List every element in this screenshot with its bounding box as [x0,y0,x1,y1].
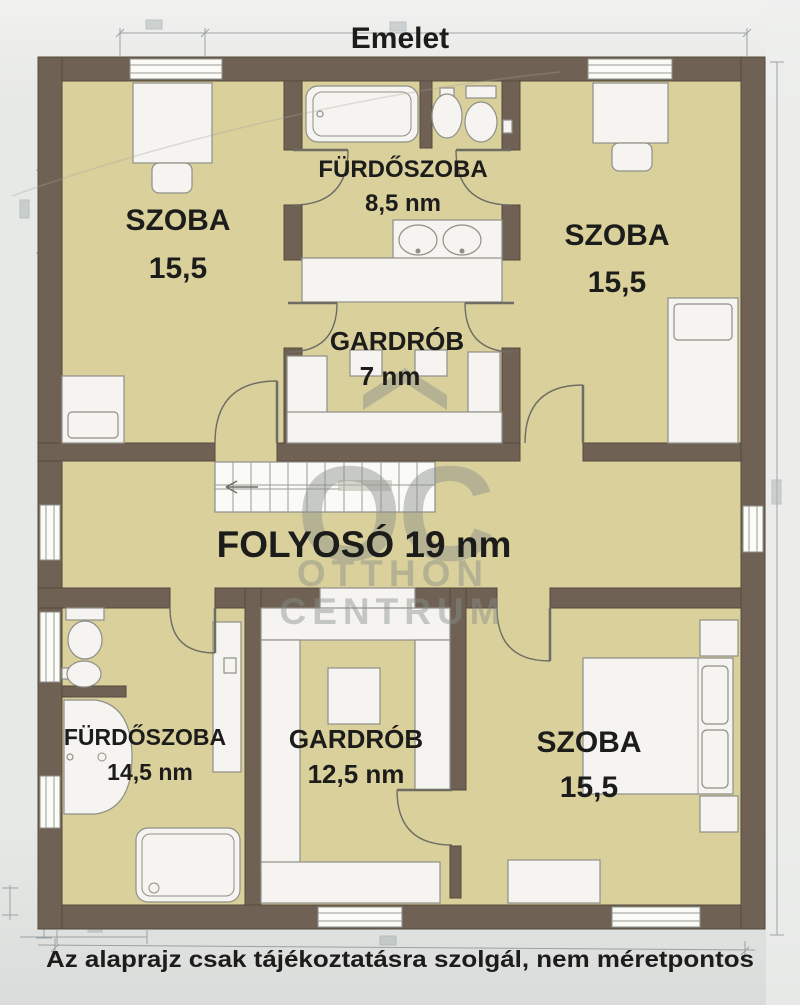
faucet [416,249,421,254]
dimension-tick-label [380,936,396,945]
toilet-tank [66,608,104,620]
room-area-szoba-bottom-right: 15,5 [560,771,618,804]
window [588,59,672,79]
room-area-szoba-top-left: 15,5 [149,252,207,285]
desk [593,83,668,143]
wall-inner [502,205,520,260]
dimension-tick-label [772,480,781,504]
wall-stub-bathroom [62,686,126,697]
wall-inner [284,205,302,260]
wall-inner [502,81,520,150]
bidet [67,661,101,687]
window [40,776,60,828]
wall-inner [245,588,261,905]
pillow [702,730,728,788]
cabinet-handle [224,658,236,673]
room-label-furdoszoba-bottom: FÜRDŐSZOBA [64,723,226,750]
wardrobe [261,862,440,903]
room-area-gardrob-bottom: 12,5 nm [308,759,405,789]
desk [133,83,212,163]
toilet-tank [466,86,496,98]
faucet [460,249,465,254]
wall-outer-right [741,57,765,929]
dimension-tick-label [146,20,162,29]
room-area-gardrob-top: 7 nm [360,361,421,391]
toilet-paper-holder [503,120,512,133]
room-label-szoba-top-right: SZOBA [565,219,670,252]
door-leaf [450,846,461,898]
floor-plan-drawing: OC OTTHON CENTRUM SZOBA 15,5 FÜRDŐSZOBA … [0,0,800,1005]
window [40,505,60,560]
faucet [67,754,73,760]
room-area-furdoszoba-bottom: 14,5 nm [107,759,193,785]
wall-corridor-top [583,443,741,461]
bidet [432,94,462,138]
nightstand [700,620,738,656]
room-area-furdoszoba-top: 8,5 nm [365,190,441,217]
page-title: Emelet [351,22,449,55]
wall-corridor-bottom [38,588,170,608]
chair [152,163,192,193]
room-label-szoba-top-left: SZOBA [126,204,231,237]
floor-plan-page: OC OTTHON CENTRUM SZOBA 15,5 FÜRDŐSZOBA … [0,0,800,1005]
room-label-furdoszoba-top: FÜRDŐSZOBA [318,155,487,183]
room-label-szoba-bottom-right: SZOBA [537,726,642,759]
toilet [465,102,497,142]
room-label-folyoso: FOLYOSÓ 19 nm [217,523,512,565]
wardrobe [287,356,327,414]
window [130,59,222,79]
window [743,506,763,552]
room-area-szoba-top-right: 15,5 [588,266,646,299]
window [612,907,700,927]
disclaimer-caption: Az alaprajz csak tájékoztatásra szolgál,… [46,946,754,972]
dresser [508,860,600,903]
shower-tray [136,828,240,902]
toilet [68,621,102,659]
window [318,907,402,927]
wall-corridor-bottom [550,588,741,608]
nightstand [700,796,738,832]
chair [612,143,652,171]
room-label-gardrob-bottom: GARDRÓB [289,724,423,754]
pillow [68,412,118,438]
wardrobe [415,640,450,790]
faucet [317,111,323,117]
pillow [674,304,732,340]
cabinet-band [302,258,502,302]
watermark-line2: CENTRUM [280,591,507,632]
window [40,612,60,682]
wardrobe [261,640,300,870]
dimension-tick-label [20,200,29,218]
pillow [702,666,728,724]
page-margin-strip [766,0,800,1005]
room-label-gardrob-top: GARDRÓB [330,326,464,356]
wardrobe-island [328,668,380,724]
wardrobe [468,352,500,412]
wall-corridor-top [38,443,215,461]
